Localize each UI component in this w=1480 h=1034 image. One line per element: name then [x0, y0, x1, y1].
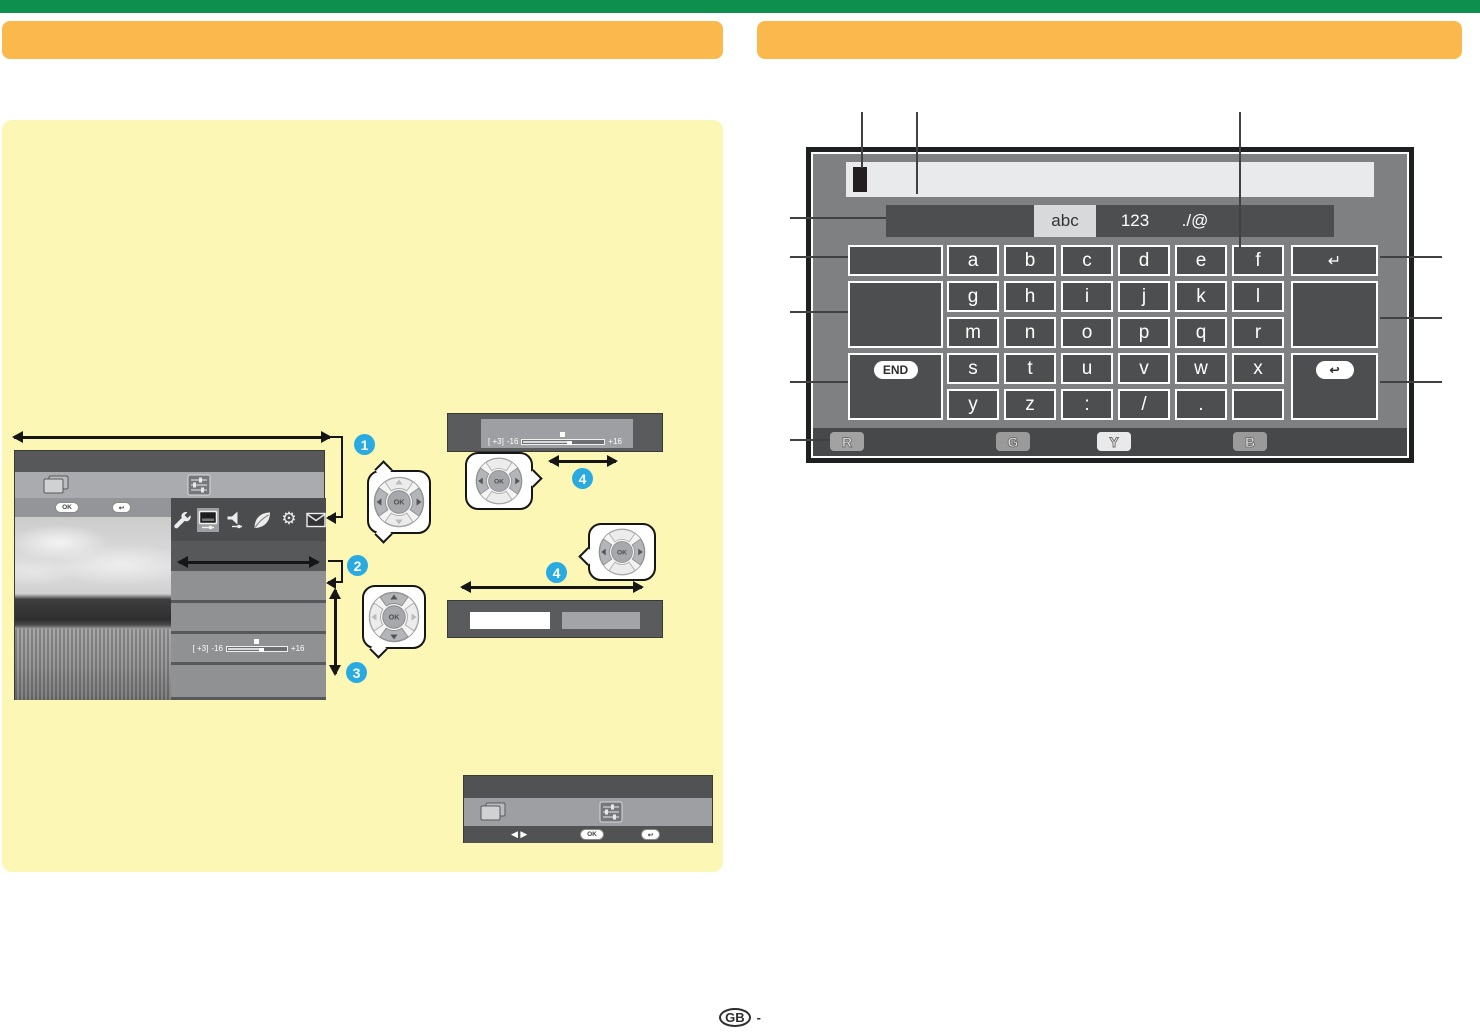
manual-page: OK ↩ ⚙ [ +3] — [0, 0, 1480, 1034]
color-button-yellow[interactable]: Y — [1097, 432, 1131, 451]
envelope-icon[interactable] — [305, 508, 327, 532]
menu-height-arrow — [334, 590, 337, 674]
leader-line-left-middle-key — [790, 311, 848, 313]
key-y[interactable]: y — [947, 389, 999, 420]
menu-bar-band — [464, 798, 712, 826]
menu-bar-hints: ◀ ▶ OK ↩ — [464, 826, 712, 843]
key-left-top[interactable] — [848, 245, 943, 276]
select-arrow-wide — [462, 586, 642, 589]
ok-button-pill[interactable]: OK — [580, 829, 604, 840]
section-header-right — [757, 21, 1462, 59]
color-button-red[interactable]: R — [830, 432, 864, 451]
bubble-tail — [578, 547, 596, 565]
slider-min: -16 — [507, 437, 519, 446]
back-pill: ↩ — [1316, 361, 1354, 379]
end-pill: END — [874, 361, 918, 379]
dpad-horizontal-2[interactable]: OK — [465, 452, 533, 510]
key-z[interactable]: z — [1004, 389, 1056, 420]
key-p[interactable]: p — [1118, 317, 1170, 348]
tab-symbols[interactable]: ./@ — [1170, 205, 1220, 237]
dpad-vertical[interactable]: OK — [362, 585, 426, 649]
leader-line-left-top-key — [790, 256, 848, 258]
dpad-icon: OK — [372, 475, 426, 529]
menu-items-column: ⚙ [ +3] -16 +16 — [171, 498, 326, 700]
color-button-bar: R G Y B — [813, 428, 1407, 456]
key-q[interactable]: q — [1175, 317, 1227, 348]
callout-1-bracket — [328, 436, 343, 518]
key-h[interactable]: h — [1004, 281, 1056, 312]
key-back[interactable]: ↩ — [1291, 353, 1378, 420]
key-colon[interactable]: : — [1061, 389, 1113, 420]
callout-1-bracket-arrowhead — [326, 512, 336, 524]
keyboard-panel: abc 123 ./@ END a b c d e f g h i j k l … — [806, 147, 1414, 463]
slider-min: -16 — [211, 644, 223, 653]
menu-item-row[interactable] — [171, 571, 326, 600]
callout-4a: 4 — [572, 468, 593, 489]
key-o[interactable]: o — [1061, 317, 1113, 348]
leader-line-cursor — [861, 112, 863, 168]
return-button-pill[interactable]: ↩ — [641, 829, 660, 840]
key-x[interactable]: x — [1232, 353, 1284, 384]
bubble-tail — [524, 469, 542, 487]
key-i[interactable]: i — [1061, 281, 1113, 312]
leader-line-right-middle-key — [1380, 317, 1442, 319]
photo-preview — [15, 517, 171, 700]
page-footer: GB - — [0, 1008, 1480, 1027]
slider-track[interactable] — [521, 439, 605, 445]
dpad-horizontal-1[interactable]: OK — [367, 470, 431, 534]
sliders-icon — [599, 801, 623, 823]
leader-line-enter-key — [1380, 256, 1442, 258]
menu-screenshot: OK ↩ ⚙ [ +3] — [14, 450, 325, 700]
key-l[interactable]: l — [1232, 281, 1284, 312]
menu-category-icons: ⚙ — [171, 498, 326, 541]
key-right-middle[interactable] — [1291, 281, 1378, 348]
leader-line-tabbar — [790, 217, 886, 219]
key-u[interactable]: u — [1061, 353, 1113, 384]
folder-icon — [480, 802, 506, 822]
callout-3: 3 — [346, 662, 367, 683]
key-period[interactable]: . — [1175, 389, 1227, 420]
option-unselected-box[interactable] — [562, 612, 640, 629]
slider-value: [ +3] — [488, 437, 504, 446]
keyboard-inner: abc 123 ./@ END a b c d e f g h i j k l … — [811, 152, 1409, 458]
text-input-field[interactable] — [846, 162, 1374, 197]
leaf-icon[interactable] — [251, 508, 273, 532]
callout-2: 2 — [347, 555, 368, 576]
key-w[interactable]: w — [1175, 353, 1227, 384]
key-n[interactable]: n — [1004, 317, 1056, 348]
menu-item-row-slider[interactable]: [ +3] -16 +16 — [171, 634, 326, 662]
key-j[interactable]: j — [1118, 281, 1170, 312]
menu-slider-readout: [ +3] -16 +16 — [171, 644, 326, 653]
key-a[interactable]: a — [947, 245, 999, 276]
leader-line-input — [916, 112, 918, 194]
slider-track[interactable] — [226, 646, 288, 652]
dpad-icon: OK — [367, 590, 421, 644]
adjust-arrow-small — [550, 460, 616, 463]
charset-tab-bar: abc 123 ./@ — [886, 205, 1334, 237]
menu-item-row[interactable] — [171, 603, 326, 631]
key-end[interactable]: END — [848, 353, 943, 420]
dpad-icon: OK — [474, 456, 524, 506]
key-slash[interactable]: / — [1118, 389, 1170, 420]
svg-text:OK: OK — [394, 498, 406, 507]
slider-popup-screenshot: [ +3] -16 +16 — [447, 413, 663, 452]
key-g[interactable]: g — [947, 281, 999, 312]
tab-abc[interactable]: abc — [1034, 205, 1096, 237]
ok-button-pill[interactable]: OK — [55, 502, 79, 513]
key-d[interactable]: d — [1118, 245, 1170, 276]
page-top-accent-bar — [0, 0, 1480, 13]
slider-max: +16 — [291, 644, 305, 653]
leader-line-back-key — [1380, 381, 1442, 383]
key-blank[interactable] — [1232, 389, 1284, 420]
left-right-arrows: ◀ ▶ — [511, 829, 527, 840]
key-v[interactable]: v — [1118, 353, 1170, 384]
key-k[interactable]: k — [1175, 281, 1227, 312]
key-m[interactable]: m — [947, 317, 999, 348]
menu-tab-band — [15, 472, 324, 498]
option-selected-box[interactable] — [470, 612, 550, 629]
sliders-icon — [187, 474, 211, 496]
category-scroll-arrow — [179, 561, 318, 564]
instruction-panel: OK ↩ ⚙ [ +3] — [2, 120, 723, 872]
tab-123[interactable]: 123 — [1110, 205, 1160, 237]
key-enter[interactable]: ↵ — [1291, 245, 1378, 276]
key-t[interactable]: t — [1004, 353, 1056, 384]
region-badge: GB — [719, 1008, 751, 1027]
display-icon[interactable] — [197, 508, 219, 532]
footer-dash: - — [757, 1010, 761, 1025]
option-bar-screenshot — [447, 600, 663, 638]
key-s[interactable]: s — [947, 353, 999, 384]
svg-text:OK: OK — [494, 479, 504, 486]
menu-hint-band: OK ↩ — [15, 498, 171, 517]
key-left-middle[interactable] — [848, 281, 943, 348]
leader-line-red-button — [790, 439, 830, 441]
menu-preview-column: OK ↩ — [15, 498, 171, 700]
menu-bar-screenshot: ◀ ▶ OK ↩ — [463, 775, 713, 843]
slider-value: [ +3] — [193, 644, 209, 653]
return-button-pill[interactable]: ↩ — [112, 502, 131, 513]
svg-text:OK: OK — [389, 613, 401, 622]
key-c[interactable]: c — [1061, 245, 1113, 276]
menu-width-arrow — [14, 436, 330, 439]
slider-max: +16 — [608, 437, 622, 446]
folder-icon — [43, 475, 69, 495]
color-button-green[interactable]: G — [996, 432, 1030, 451]
callout-4b: 4 — [546, 562, 567, 583]
popup-slider-readout: [ +3] -16 +16 — [448, 437, 662, 446]
key-f[interactable]: f — [1232, 245, 1284, 276]
color-button-blue[interactable]: B — [1233, 432, 1267, 451]
dpad-horizontal-3[interactable]: OK — [588, 523, 656, 581]
section-header-left — [2, 21, 723, 59]
svg-text:OK: OK — [617, 550, 627, 557]
wrench-icon[interactable] — [170, 508, 192, 532]
menu-item-row[interactable] — [171, 665, 326, 697]
key-r[interactable]: r — [1232, 317, 1284, 348]
text-cursor — [853, 167, 867, 192]
key-b[interactable]: b — [1004, 245, 1056, 276]
key-e[interactable]: e — [1175, 245, 1227, 276]
callout-1: 1 — [354, 434, 375, 455]
gear-icon[interactable]: ⚙ — [278, 508, 300, 532]
leader-line-key-f — [1239, 112, 1241, 248]
speaker-icon[interactable] — [224, 508, 246, 532]
leader-line-end-key — [790, 381, 848, 383]
dpad-icon: OK — [597, 527, 647, 577]
menu-title-band — [15, 451, 324, 472]
